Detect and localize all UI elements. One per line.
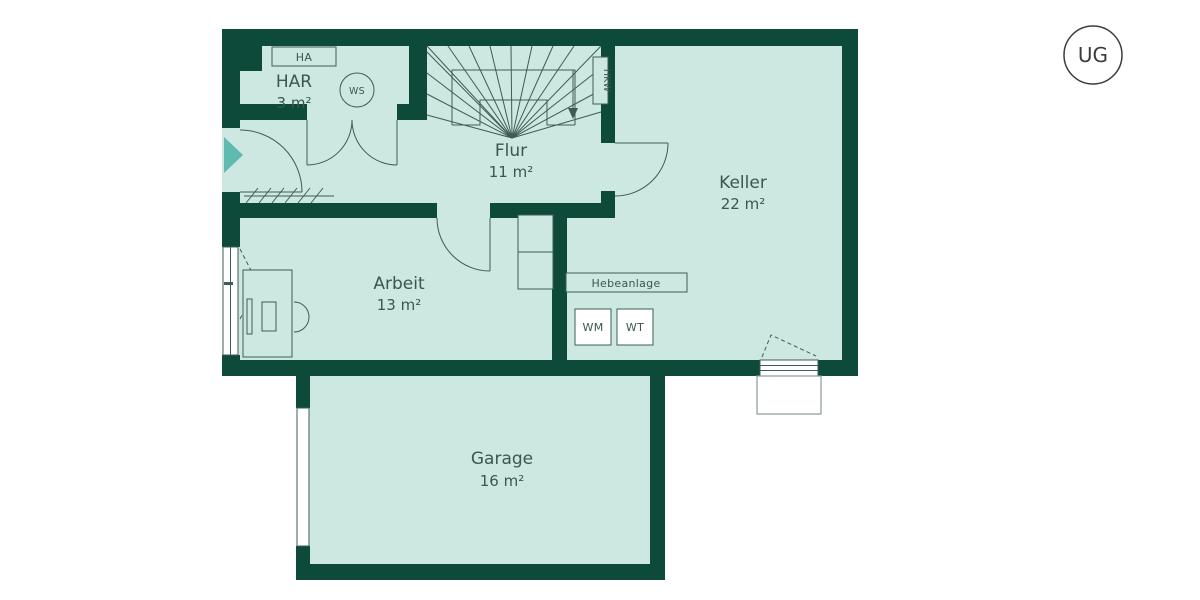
wall-garage-bottom <box>296 564 665 580</box>
wall-har-stairs <box>409 29 427 120</box>
room-har-area: 3 m² <box>277 94 312 112</box>
wall-left-mid <box>222 192 240 247</box>
wt-label: WT <box>626 321 644 334</box>
wall-garage-left-top <box>296 360 310 408</box>
ws-tank: WS <box>340 73 374 107</box>
light-shaft <box>757 376 821 414</box>
room-har-name: HAR <box>276 72 312 92</box>
room-garage-area: 16 m² <box>480 472 524 490</box>
ha-label: HA <box>296 51 313 64</box>
room-flur-name: Flur <box>495 141 527 161</box>
hebeanlage-label: Hebeanlage <box>591 277 660 290</box>
wall-left-corner-step <box>222 29 262 71</box>
wall-flur-arbeit-left <box>222 203 437 218</box>
hebeanlage-unit: Hebeanlage <box>566 273 687 292</box>
hkw-label: HKW <box>601 69 612 93</box>
wm-label: WM <box>583 321 604 334</box>
room-flur-area: 11 m² <box>489 163 533 181</box>
floor-badge-label: UG <box>1078 43 1108 67</box>
room-garage-name: Garage <box>471 449 533 469</box>
room-arbeit-name: Arbeit <box>373 274 425 294</box>
dryer: WT <box>617 309 653 345</box>
wall-top <box>222 29 858 46</box>
floor-badge: UG <box>1064 26 1122 84</box>
floorplan-canvas: HKW HA WS Hebeanlage <box>0 0 1200 600</box>
wall-right <box>842 29 858 376</box>
ws-label: WS <box>349 86 365 97</box>
wall-left-lower <box>222 355 240 376</box>
room-keller-area: 22 m² <box>721 195 765 213</box>
shelf <box>518 215 553 289</box>
ha-box: HA <box>272 47 336 66</box>
floor-areas <box>222 36 850 568</box>
garage-door <box>297 408 309 546</box>
floorplan-page: HKW HA WS Hebeanlage <box>0 0 1200 600</box>
room-arbeit-area: 13 m² <box>377 296 421 314</box>
wall-garage-right <box>650 360 665 580</box>
room-keller-name: Keller <box>719 173 767 193</box>
wall-arbeit-keller <box>552 203 567 360</box>
washing-machine: WM <box>575 309 611 345</box>
